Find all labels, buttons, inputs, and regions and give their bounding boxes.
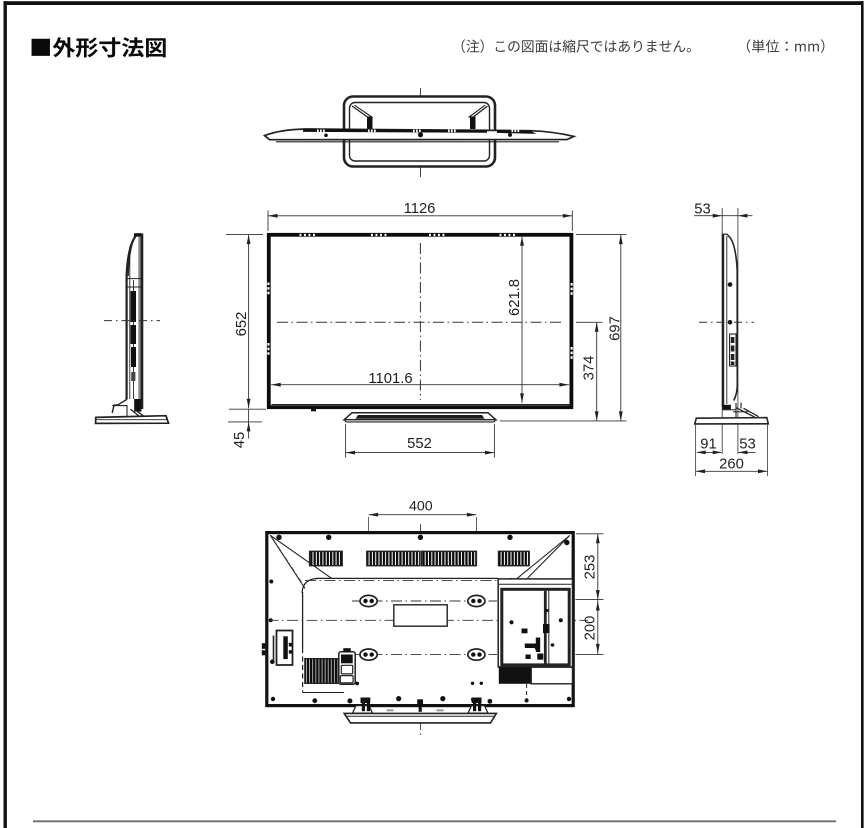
svg-text:260: 260 [719, 457, 744, 473]
svg-text:53: 53 [739, 437, 755, 453]
svg-text:53: 53 [694, 202, 710, 218]
svg-text:552: 552 [407, 436, 432, 452]
svg-text:45: 45 [232, 432, 248, 448]
svg-text:1126: 1126 [404, 201, 436, 217]
svg-text:91: 91 [700, 437, 716, 453]
svg-text:200: 200 [583, 616, 599, 641]
svg-text:253: 253 [583, 555, 599, 580]
svg-text:652: 652 [234, 312, 250, 337]
svg-text:400: 400 [409, 498, 433, 514]
svg-text:621.8: 621.8 [507, 279, 523, 316]
svg-text:374: 374 [582, 356, 598, 381]
